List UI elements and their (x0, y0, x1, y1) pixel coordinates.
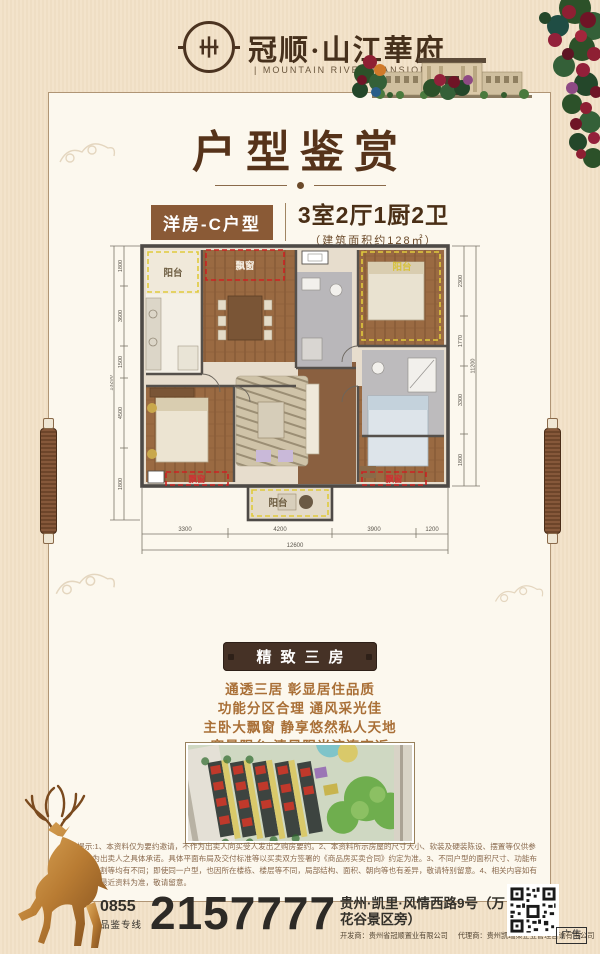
siteplan-image (185, 742, 415, 844)
cloud-motif-icon (492, 572, 544, 612)
floorplan-drawing: 阳台 飘窗 阳台 飘窗 飘窗 阳台 3300 4200 3900 1200 12… (110, 238, 490, 562)
scroll-rod-cap (43, 533, 54, 544)
dim-left-4: 4500 (118, 407, 124, 419)
unit-type-tag: 洋房-C户型 (151, 205, 273, 240)
dim-bottom-3: 3900 (367, 527, 381, 533)
tag-divider (285, 203, 286, 241)
label-baywindow-top: 飘窗 (234, 260, 255, 272)
address-block: 贵州·凯里·风情西路9号（万花谷景区旁） 开发商：贵州省冠顺置业有限公司 代理商… (340, 896, 508, 941)
dim-bottom-4: 1200 (425, 527, 439, 533)
phone-number: 2157777 (150, 886, 336, 940)
dim-left-5: 1800 (118, 478, 124, 490)
dim-left-1: 1800 (118, 260, 124, 272)
dim-right-1: 2300 (458, 275, 464, 287)
deer-illustration (0, 780, 126, 954)
brand-logo (183, 21, 235, 73)
logo-mark-icon (194, 32, 224, 62)
ad-tag: 广告 (556, 927, 587, 944)
dim-bottom-1: 3300 (178, 527, 192, 533)
dim-left-2: 3600 (118, 310, 124, 322)
dim-right-total: 11200 (471, 359, 477, 374)
feature-line: 功能分区合理 通风采光佳 (0, 699, 600, 718)
dim-right-4: 1800 (458, 454, 464, 466)
dim-bottom-2: 4200 (273, 527, 287, 533)
scroll-rod-left (40, 428, 57, 534)
label-baywindow-left: 飘窗 (188, 474, 206, 484)
qr-pattern-icon (509, 886, 557, 934)
cloud-motif-icon (52, 556, 116, 608)
room-count: 3室2厅1厨2卫 (298, 196, 449, 230)
scroll-rod-right (544, 428, 561, 534)
developer-name: 开发商：贵州省冠顺置业有限公司 (340, 931, 448, 941)
dim-right-3: 3300 (458, 394, 464, 406)
dim-left-3: 1500 (118, 356, 124, 368)
dim-left-total: 13200 (110, 375, 115, 390)
label-balcony-topright: 阳台 (392, 261, 412, 273)
dim-bottom-total: 12600 (287, 543, 304, 549)
dim-right-2: 1770 (458, 335, 464, 347)
feature-line: 主卧大飘窗 静享悠然私人天地 (0, 718, 600, 737)
label-balcony-topleft: 阳台 (163, 267, 183, 279)
siteplan-art (188, 745, 412, 841)
scroll-rod-cap (547, 418, 558, 429)
flowers-decoration (350, 0, 600, 196)
scroll-rod-cap (43, 418, 54, 429)
label-balcony-bottom: 阳台 (268, 497, 288, 509)
feature-line: 通透三居 彰显居住品质 (0, 680, 600, 699)
highlight-badge: 精致三房 (223, 642, 376, 671)
project-address: 贵州·凯里·风情西路9号（万花谷景区旁） (340, 896, 508, 928)
disclaimer-text: 温馨提示:1、本资料仅为要约邀请，不作为出卖人向买受人发出之购房要约。2、本资料… (62, 841, 539, 890)
scroll-rod-cap (547, 533, 558, 544)
qr-code (507, 884, 559, 936)
label-baywindow-right: 飘窗 (385, 474, 403, 484)
